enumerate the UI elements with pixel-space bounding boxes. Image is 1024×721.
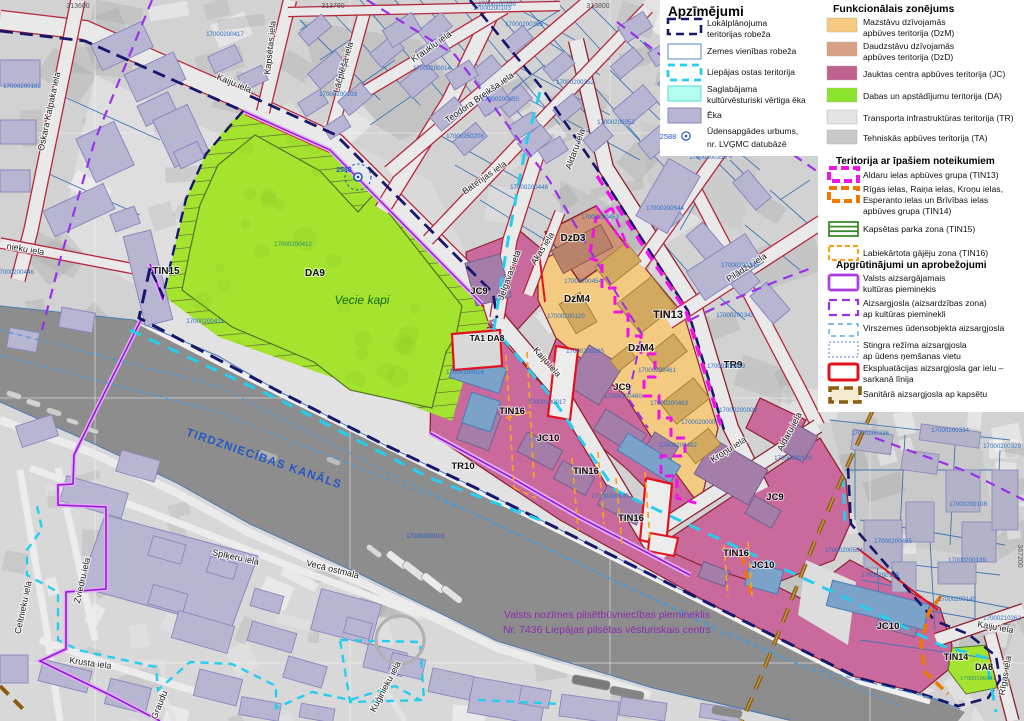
svg-text:DA9: DA9 [305, 268, 325, 279]
svg-text:Funkcionālais zonējums: Funkcionālais zonējums [833, 3, 955, 15]
svg-text:JC9: JC9 [766, 492, 783, 503]
svg-text:JC9: JC9 [470, 286, 487, 297]
svg-text:Dabas un apstādījumu teritorij: Dabas un apstādījumu teritorija (DA) [863, 91, 1002, 101]
svg-text:TIN16: TIN16 [618, 513, 644, 524]
svg-text:Valsts aizsargājamais: Valsts aizsargājamais [863, 273, 945, 283]
svg-text:Ūdensapgādes urbums,: Ūdensapgādes urbums, [707, 126, 798, 136]
svg-text:2588: 2588 [336, 167, 352, 174]
svg-text:Nr. 7436 Liepājas pilsētas vēs: Nr. 7436 Liepājas pilsētas vēsturiskais … [503, 624, 711, 636]
svg-text:Liepājas ostas teritorija: Liepājas ostas teritorija [707, 67, 795, 77]
svg-text:ap kultūras pieminekli: ap kultūras pieminekli [863, 309, 946, 319]
svg-text:Aldaru ielas apbūves grupa (T: Aldaru ielas apbūves grupa (TIN13) [863, 170, 999, 180]
svg-text:17000200459: 17000200459 [707, 363, 745, 370]
svg-text:17000100016: 17000100016 [446, 369, 484, 376]
svg-text:17000300013: 17000300013 [406, 533, 444, 540]
svg-text:17000200544: 17000200544 [646, 205, 684, 212]
svg-text:17000200355: 17000200355 [505, 21, 543, 28]
svg-text:17000200095: 17000200095 [566, 348, 604, 355]
svg-text:17000300460: 17000300460 [604, 393, 642, 400]
svg-text:17000200462: 17000200462 [659, 442, 697, 449]
svg-text:17000200454: 17000200454 [564, 278, 602, 285]
svg-text:Tehniskās apbūves teritorija (: Tehniskās apbūves teritorija (TA) [863, 133, 988, 143]
svg-text:Transporta infrastruktūras ter: Transporta infrastruktūras teritorija (T… [863, 113, 1014, 123]
svg-text:Sanitārā aizsargjosla ap kapsē: Sanitārā aizsargjosla ap kapsētu [863, 389, 987, 399]
svg-text:apbūves teritorija (DzM): apbūves teritorija (DzM) [863, 28, 954, 38]
svg-text:313600: 313600 [66, 3, 89, 10]
svg-text:Apzīmējumi: Apzīmējumi [668, 4, 744, 19]
svg-text:JC9: JC9 [613, 382, 630, 393]
svg-text:Zemes vienības robeža: Zemes vienības robeža [707, 46, 797, 56]
svg-text:17000200450: 17000200450 [481, 96, 519, 103]
svg-text:2588: 2588 [660, 132, 677, 141]
svg-text:17000200448: 17000200448 [510, 184, 548, 191]
svg-text:Esperanto ielas un Brīvības ie: Esperanto ielas un Brīvības ielas [863, 195, 988, 205]
svg-text:Jauktas centra apbūves teritor: Jauktas centra apbūves teritorija (JC) [863, 69, 1005, 79]
svg-text:DA8: DA8 [975, 662, 993, 672]
svg-text:17000200014: 17000200014 [413, 65, 451, 72]
svg-text:17000100017: 17000100017 [528, 399, 566, 406]
svg-text:Ēka: Ēka [707, 110, 722, 120]
svg-text:Rīgas ielas, Raiņa ielas, Kroņ: Rīgas ielas, Raiņa ielas, Kroņu ielas, [863, 184, 1003, 194]
svg-text:ap ūdens ņemšanas vietu: ap ūdens ņemšanas vietu [863, 351, 961, 361]
svg-text:17000200352: 17000200352 [556, 79, 594, 86]
svg-text:Valsts nozīmes pilsētbūvniecīb: Valsts nozīmes pilsētbūvniecības piemine… [504, 609, 710, 621]
svg-text:17000200504: 17000200504 [825, 547, 863, 554]
svg-text:apbūves teritorija (DzD): apbūves teritorija (DzD) [863, 52, 953, 62]
svg-text:TIN16: TIN16 [499, 406, 525, 417]
svg-text:17000200140: 17000200140 [938, 596, 976, 603]
svg-text:Saglabājama: Saglabājama [707, 84, 757, 94]
svg-text:kultūrvēsturiski vērtiga ēka: kultūrvēsturiski vērtiga ēka [707, 95, 806, 105]
svg-text:17000200411: 17000200411 [186, 318, 224, 325]
svg-text:TR10: TR10 [451, 461, 474, 472]
svg-text:17000200192: 17000200192 [3, 83, 41, 90]
svg-text:apbūves grupa (TIN14): apbūves grupa (TIN14) [863, 206, 952, 216]
svg-text:DzM4: DzM4 [628, 343, 655, 354]
svg-text:Kapsētas parka zona (TIN15): Kapsētas parka zona (TIN15) [863, 224, 975, 234]
svg-text:17000200007: 17000200007 [681, 419, 719, 426]
svg-text:17000200199: 17000200199 [861, 572, 899, 579]
svg-text:17000210262: 17000210262 [983, 615, 1021, 622]
svg-text:TIN16: TIN16 [573, 466, 599, 477]
svg-text:nr. LVĢMC datubāzē: nr. LVĢMC datubāzē [707, 139, 787, 149]
svg-text:JC10: JC10 [752, 560, 775, 571]
svg-text:17000200009: 17000200009 [719, 407, 757, 414]
svg-text:313700: 313700 [321, 3, 344, 10]
svg-text:17000200334: 17000200334 [931, 427, 969, 434]
svg-text:17000200343: 17000200343 [716, 312, 754, 319]
svg-text:DzM4: DzM4 [564, 294, 591, 305]
svg-text:17000250208: 17000250208 [446, 133, 484, 140]
svg-text:17000200176: 17000200176 [774, 455, 812, 462]
svg-text:313800: 313800 [586, 3, 609, 10]
svg-text:DzD3: DzD3 [560, 233, 585, 244]
svg-text:17000200139: 17000200139 [948, 557, 986, 564]
svg-text:17000106441: 17000106441 [960, 676, 995, 682]
svg-text:TIN15: TIN15 [152, 266, 180, 277]
svg-text:kultūras pieminekis: kultūras pieminekis [863, 284, 936, 294]
svg-text:17000200329: 17000200329 [983, 443, 1021, 450]
svg-text:Stingra režīma aizsargjosla: Stingra režīma aizsargjosla [863, 340, 967, 350]
svg-text:17000200485: 17000200485 [874, 538, 912, 545]
svg-text:TA1 DA8: TA1 DA8 [470, 333, 505, 343]
svg-text:teritorijas robeža: teritorijas robeža [707, 29, 771, 39]
svg-text:Apgrūtinājumi un aprobežojumi: Apgrūtinājumi un aprobežojumi [836, 260, 987, 271]
svg-text:17000200453: 17000200453 [581, 214, 619, 221]
svg-text:JC10: JC10 [877, 621, 900, 632]
svg-text:17000200446: 17000200446 [0, 269, 34, 276]
svg-text:Aizsargjosla (aizsardzības zon: Aizsargjosla (aizsardzības zona) [863, 298, 987, 308]
svg-text:17000200412: 17000200412 [274, 241, 312, 248]
svg-text:17000100147: 17000100147 [591, 493, 629, 500]
svg-text:17000200345: 17000200345 [721, 262, 759, 269]
svg-text:TIN16: TIN16 [723, 548, 749, 559]
svg-text:17000200417: 17000200417 [206, 31, 244, 38]
svg-text:Ekspluatācijas aizsargjosla ga: Ekspluatācijas aizsargjosla gar ielu – [863, 363, 1004, 373]
svg-text:17000200108: 17000200108 [949, 501, 987, 508]
svg-text:367200: 367200 [1016, 544, 1023, 567]
svg-text:17000200352: 17000200352 [597, 119, 635, 126]
svg-text:JC10: JC10 [537, 433, 560, 444]
svg-text:Virszemes ūdensobjekta aizsarg: Virszemes ūdensobjekta aizsargjosla [863, 323, 1004, 333]
svg-text:Daudzstāvu dzīvojamās: Daudzstāvu dzīvojamās [863, 41, 954, 51]
svg-text:17000200120: 17000200120 [547, 313, 585, 320]
svg-text:17000200461: 17000200461 [638, 367, 676, 374]
svg-text:sarkanā līnija: sarkanā līnija [863, 374, 914, 384]
svg-text:Labiekārtota gājēju zona (TIN1: Labiekārtota gājēju zona (TIN16) [863, 248, 988, 258]
svg-text:17000200336: 17000200336 [851, 430, 889, 437]
svg-text:17000200463: 17000200463 [650, 400, 688, 407]
svg-text:Vecie kapi: Vecie kapi [335, 293, 390, 307]
svg-text:Lokālplānojuma: Lokālplānojuma [707, 18, 767, 28]
svg-text:TIN13: TIN13 [653, 309, 683, 321]
svg-text:Teritorija ar īpašiem noteikum: Teritorija ar īpašiem noteikumiem [836, 156, 995, 167]
svg-text:17000200103: 17000200103 [319, 91, 357, 98]
svg-text:TIN14: TIN14 [944, 652, 969, 662]
svg-text:Mazstāvu dzīvojamās: Mazstāvu dzīvojamās [863, 17, 946, 27]
svg-text:17000200356: 17000200356 [478, 1, 516, 8]
